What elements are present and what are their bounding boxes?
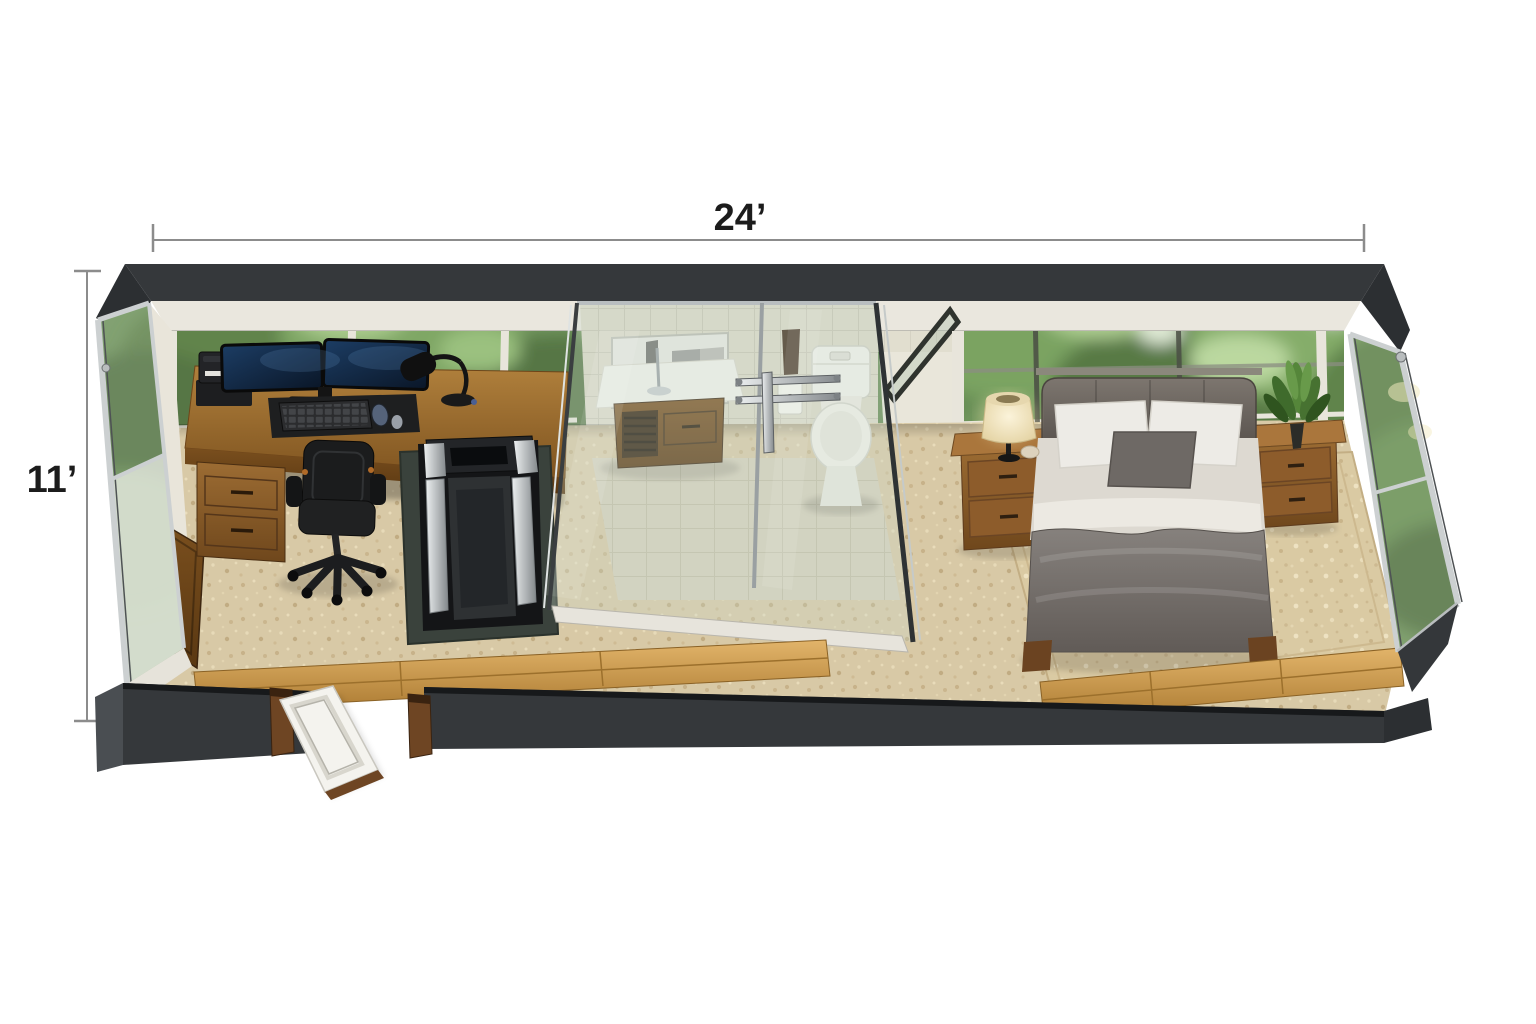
treadmill-cap-left bbox=[424, 443, 446, 478]
desk-drawer-handle-1 bbox=[231, 492, 253, 493]
treadmill bbox=[400, 436, 558, 644]
chair-accent-left bbox=[302, 469, 308, 475]
front-band-right-cap bbox=[1384, 698, 1432, 743]
treadmill-cap-right bbox=[514, 440, 538, 474]
chair-armrest-right bbox=[370, 474, 386, 505]
lamp-base bbox=[998, 454, 1020, 462]
dimension-width-label: 24’ bbox=[714, 197, 767, 239]
accent-pillow bbox=[1108, 432, 1196, 488]
seashell-decor bbox=[1021, 446, 1039, 458]
window-trim-mid bbox=[952, 331, 964, 428]
chair-accent-right bbox=[368, 467, 374, 473]
dimension-width: 24’ bbox=[153, 197, 1364, 252]
chair-seat bbox=[298, 499, 375, 537]
floor-plan-rendering: 24’ 11’ bbox=[0, 0, 1536, 1024]
right-glass-hinge bbox=[1396, 352, 1406, 362]
handle-bar-vertical bbox=[762, 372, 774, 453]
rear-wall-band bbox=[125, 264, 1384, 301]
treadmill-rail-left bbox=[426, 479, 448, 613]
left-glass-hinge bbox=[102, 364, 110, 372]
dimension-height-label: 11’ bbox=[27, 459, 78, 501]
monitor-glare-left bbox=[260, 348, 340, 372]
footboard-left bbox=[1022, 640, 1052, 672]
treadmill-belt-inner bbox=[456, 488, 508, 608]
bed bbox=[1020, 368, 1280, 674]
desk-lamp-accent bbox=[471, 399, 477, 405]
keyboard-keys bbox=[282, 403, 369, 428]
trackball bbox=[392, 415, 403, 429]
desk-lamp-base bbox=[441, 394, 475, 407]
desk-drawer-handle-2 bbox=[231, 530, 253, 531]
front-band-left-cap bbox=[95, 683, 123, 772]
treadmill-screen bbox=[450, 446, 508, 466]
lamp-shade-opening bbox=[996, 395, 1020, 403]
chair-armrest-left bbox=[286, 476, 302, 507]
headboard-rail bbox=[1036, 368, 1262, 375]
keyboard-set bbox=[268, 394, 420, 438]
bathroom-glass bbox=[544, 303, 920, 652]
dimension-height: 11’ bbox=[27, 271, 101, 721]
